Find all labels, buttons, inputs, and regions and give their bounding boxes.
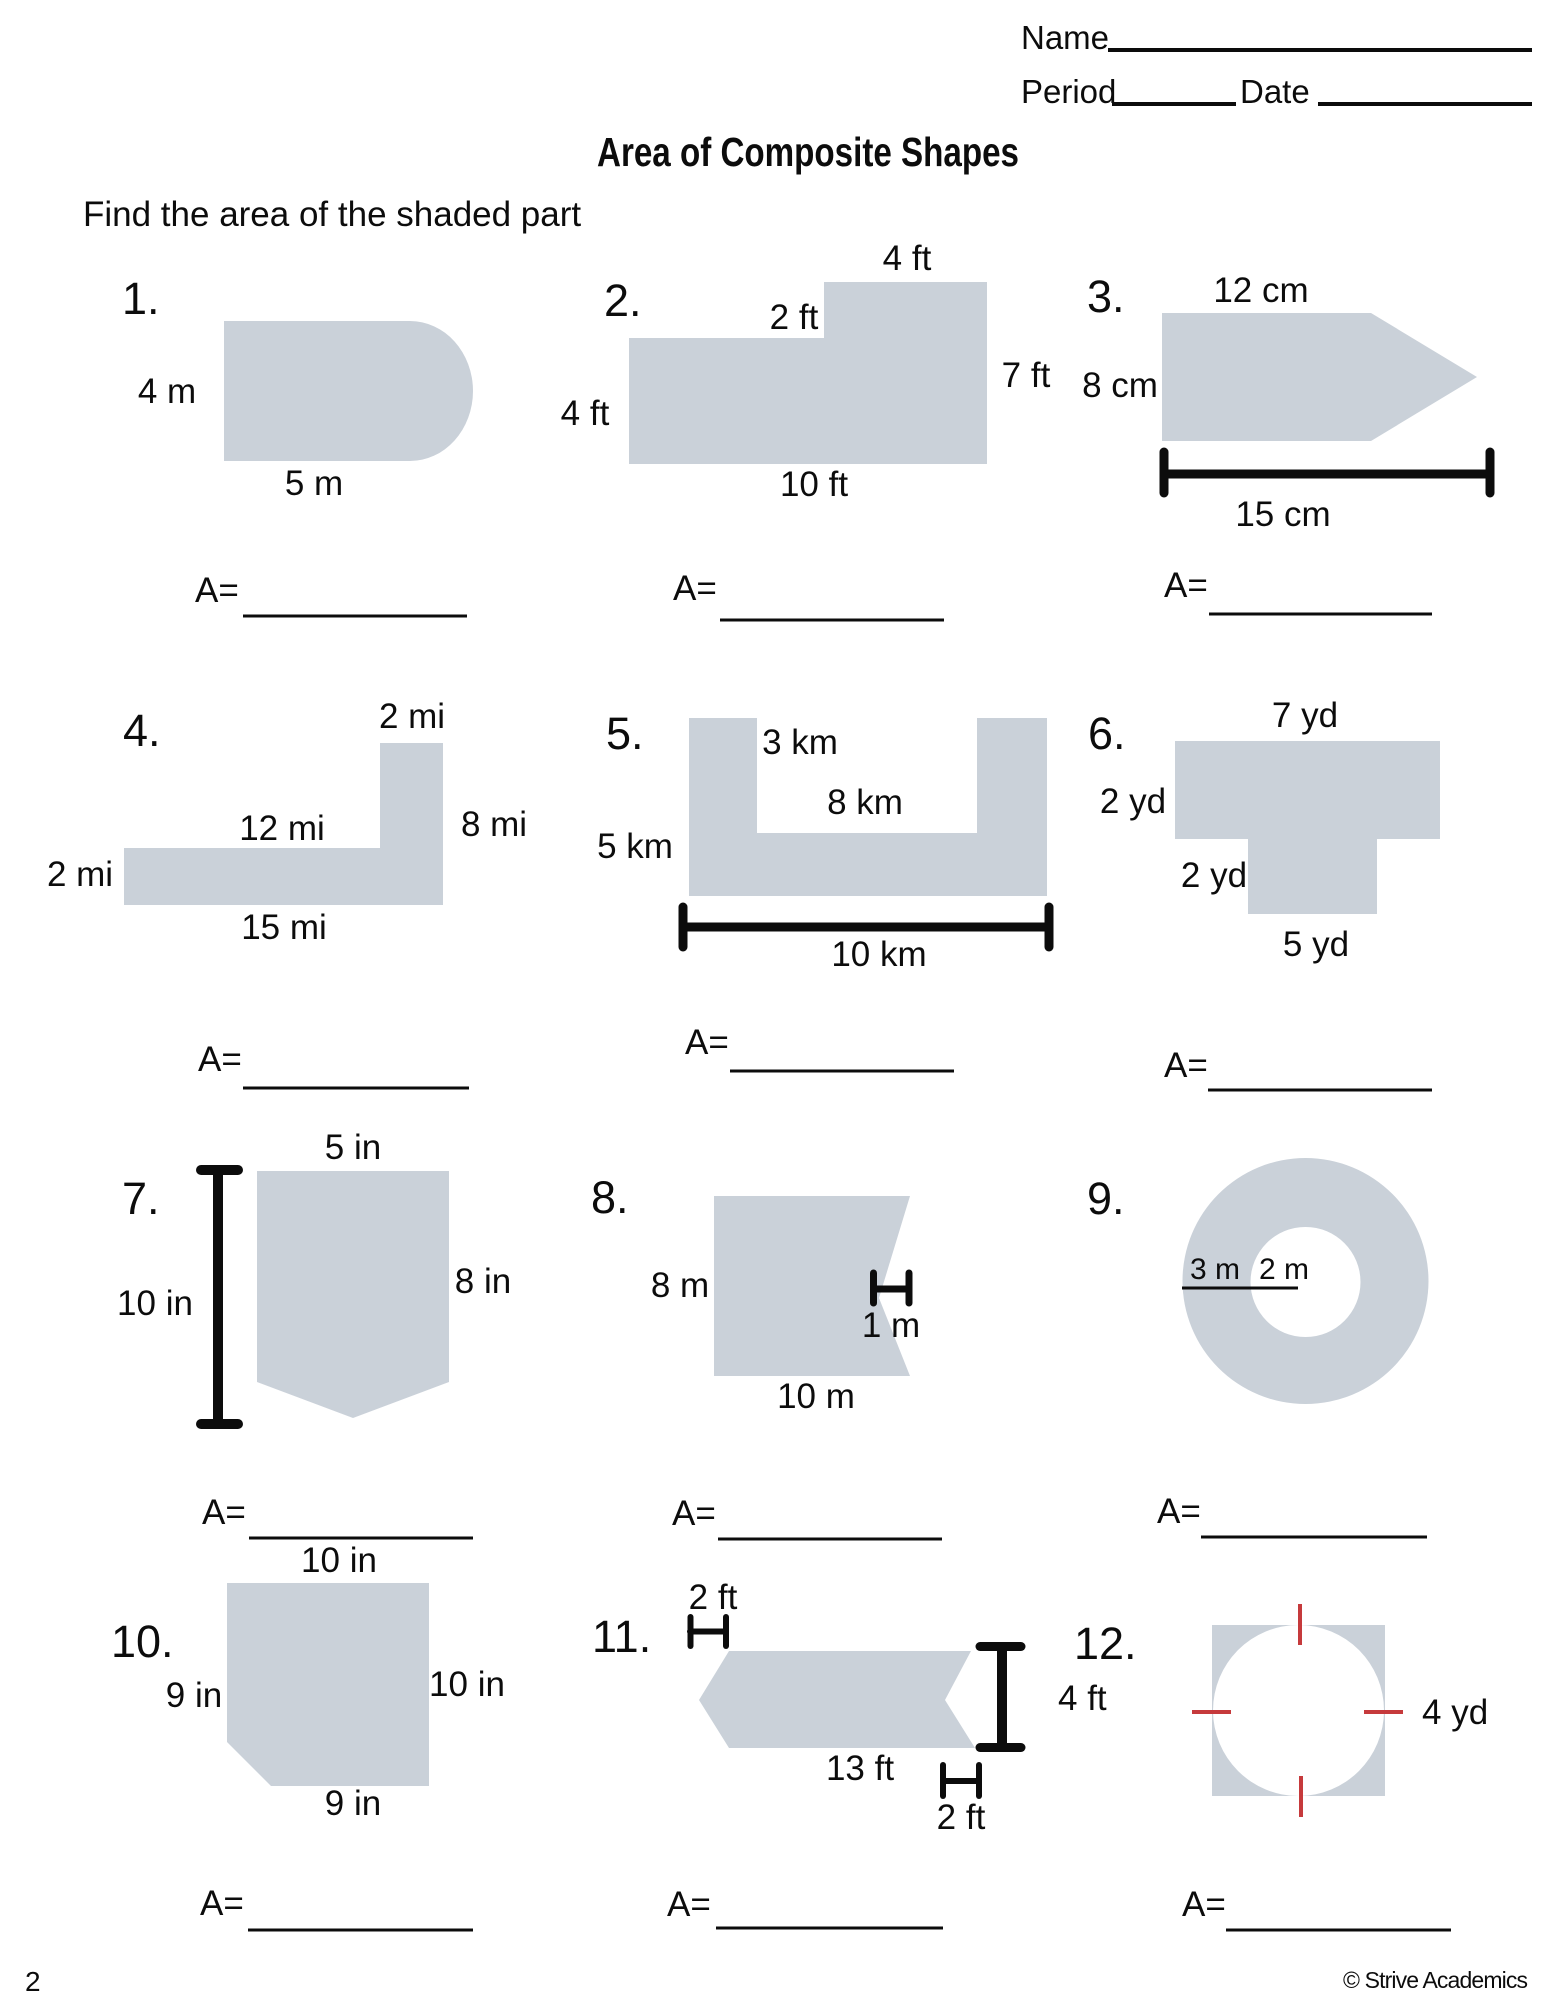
svg-text:3 km: 3 km [762, 723, 838, 762]
svg-text:2: 2 [25, 1966, 41, 1997]
svg-text:9.: 9. [1087, 1173, 1125, 1224]
svg-text:Name: Name [1021, 19, 1109, 56]
svg-text:9 in: 9 in [325, 1784, 381, 1823]
svg-text:8 m: 8 m [651, 1266, 709, 1305]
svg-text:3.: 3. [1087, 271, 1125, 322]
svg-text:8.: 8. [591, 1172, 629, 1223]
svg-text:8 km: 8 km [827, 783, 903, 822]
svg-text:A=: A= [667, 1885, 711, 1924]
svg-text:10 in: 10 in [429, 1665, 505, 1704]
svg-text:A=: A= [673, 569, 717, 608]
svg-text:A=: A= [198, 1040, 242, 1079]
svg-text:5 yd: 5 yd [1283, 925, 1349, 964]
svg-text:Find the area of the shaded pa: Find the area of the shaded part [83, 195, 581, 234]
svg-text:11.: 11. [592, 1611, 651, 1662]
svg-text:4.: 4. [123, 705, 161, 756]
svg-text:4 ft: 4 ft [561, 394, 610, 433]
svg-text:3 m: 3 m [1190, 1253, 1240, 1286]
svg-text:1.: 1. [122, 273, 160, 324]
svg-text:8 cm: 8 cm [1082, 366, 1158, 405]
svg-text:8 mi: 8 mi [461, 805, 527, 844]
svg-text:A=: A= [200, 1884, 244, 1923]
svg-text:2 mi: 2 mi [379, 697, 445, 736]
svg-text:2 mi: 2 mi [47, 855, 113, 894]
svg-text:4 yd: 4 yd [1422, 1693, 1488, 1732]
svg-text:10 m: 10 m [777, 1377, 855, 1416]
svg-text:A=: A= [202, 1493, 246, 1532]
svg-text:12 mi: 12 mi [239, 809, 325, 848]
svg-text:10 ft: 10 ft [780, 465, 848, 504]
svg-text:A=: A= [1164, 566, 1208, 605]
svg-text:10 in: 10 in [117, 1284, 193, 1323]
svg-text:A=: A= [195, 571, 239, 610]
svg-text:Period: Period [1021, 73, 1116, 110]
svg-text:2 ft: 2 ft [937, 1798, 986, 1837]
svg-text:7 ft: 7 ft [1002, 356, 1051, 395]
svg-text:10 in: 10 in [301, 1541, 377, 1580]
svg-text:7 yd: 7 yd [1272, 696, 1338, 735]
svg-text:A=: A= [685, 1023, 729, 1062]
svg-text:13 ft: 13 ft [826, 1749, 894, 1788]
svg-text:5.: 5. [606, 708, 644, 759]
svg-text:1 m: 1 m [862, 1306, 920, 1345]
svg-text:A=: A= [1182, 1885, 1226, 1924]
svg-text:Area of Composite Shapes: Area of Composite Shapes [597, 129, 1019, 175]
svg-text:5 in: 5 in [325, 1128, 381, 1167]
svg-text:© Strive Academics: © Strive Academics [1343, 1967, 1528, 1993]
svg-text:4 ft: 4 ft [883, 239, 932, 278]
svg-text:9 in: 9 in [166, 1676, 222, 1715]
svg-text:5 m: 5 m [285, 464, 343, 503]
svg-text:10 km: 10 km [831, 935, 926, 974]
svg-text:7.: 7. [122, 1173, 160, 1224]
svg-text:6.: 6. [1088, 708, 1126, 759]
svg-text:12 cm: 12 cm [1213, 271, 1308, 310]
svg-text:12.: 12. [1074, 1618, 1137, 1669]
svg-text:2 ft: 2 ft [689, 1578, 738, 1617]
svg-text:Date: Date [1240, 73, 1310, 110]
svg-text:2 ft: 2 ft [770, 298, 819, 337]
svg-text:4 ft: 4 ft [1058, 1679, 1107, 1718]
svg-text:8 in: 8 in [455, 1262, 511, 1301]
svg-text:A=: A= [1164, 1046, 1208, 1085]
svg-text:2.: 2. [604, 275, 642, 326]
svg-text:A=: A= [672, 1494, 716, 1533]
svg-text:15 mi: 15 mi [241, 908, 327, 947]
svg-text:2 m: 2 m [1259, 1253, 1309, 1286]
svg-text:15 cm: 15 cm [1235, 495, 1330, 534]
svg-text:2 yd: 2 yd [1100, 782, 1166, 821]
svg-text:4 m: 4 m [138, 372, 196, 411]
svg-text:2 yd: 2 yd [1181, 856, 1247, 895]
svg-text:A=: A= [1157, 1492, 1201, 1531]
svg-text:5 km: 5 km [597, 827, 673, 866]
svg-text:10.: 10. [111, 1616, 174, 1667]
